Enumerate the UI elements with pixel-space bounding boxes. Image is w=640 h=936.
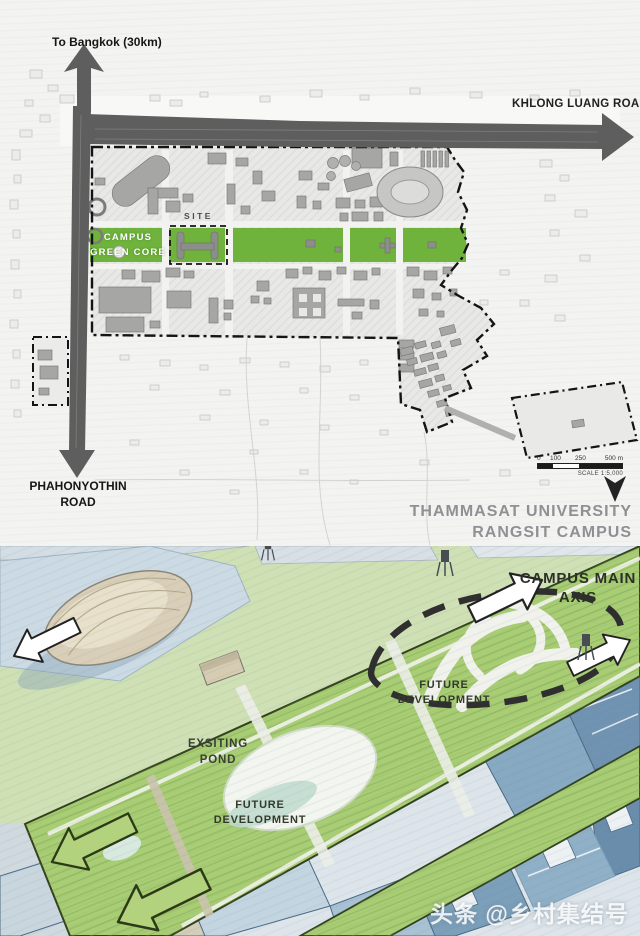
campus-main-axis-label: CAMPUS MAIN AXIS [512,570,640,608]
scale-bar-segments [537,463,623,469]
perspective-panel: CAMPUS MAIN AXIS FUTURE DEVELOPMENT EXSI… [0,546,640,936]
phahonyothin-road-label: PHAHONYOTHIN ROAD [28,479,128,510]
map-title: THAMMASAT UNIVERSITY RANGSIT CAMPUS [350,501,632,543]
scale-tick-100: 100 [550,455,561,462]
exsiting-pond-label: EXSITING POND [162,737,274,768]
future-development-lower-label: FUTURE DEVELOPMENT [172,798,348,828]
presentation-poster: To Bangkok (30km) KHLONG LUANG ROAD PHAH… [0,0,640,936]
watermark: 头条 @乡村集结号 [430,895,635,929]
scale-bar: 0 100 250 500 m SCALE 1:5,000 [537,455,623,477]
scale-tick-500: 500 m [605,455,623,462]
north-arrow-icon [604,476,626,502]
site-plan-panel: To Bangkok (30km) KHLONG LUANG ROAD PHAH… [0,0,640,546]
west-parcel [33,337,68,405]
khlong-luang-road-label: KHLONG LUANG ROAD [512,98,640,110]
future-development-upper-label: FUTURE DEVELOPMENT [360,678,528,708]
stadium-field [391,180,429,204]
to-bangkok-label: To Bangkok (30km) [52,35,162,49]
scale-tick-250: 250 [575,455,586,462]
scale-tick-0: 0 [537,455,541,462]
site-label: SITE [170,211,227,221]
campus-green-core-label: CAMPUS GREEN CORE [88,230,168,260]
